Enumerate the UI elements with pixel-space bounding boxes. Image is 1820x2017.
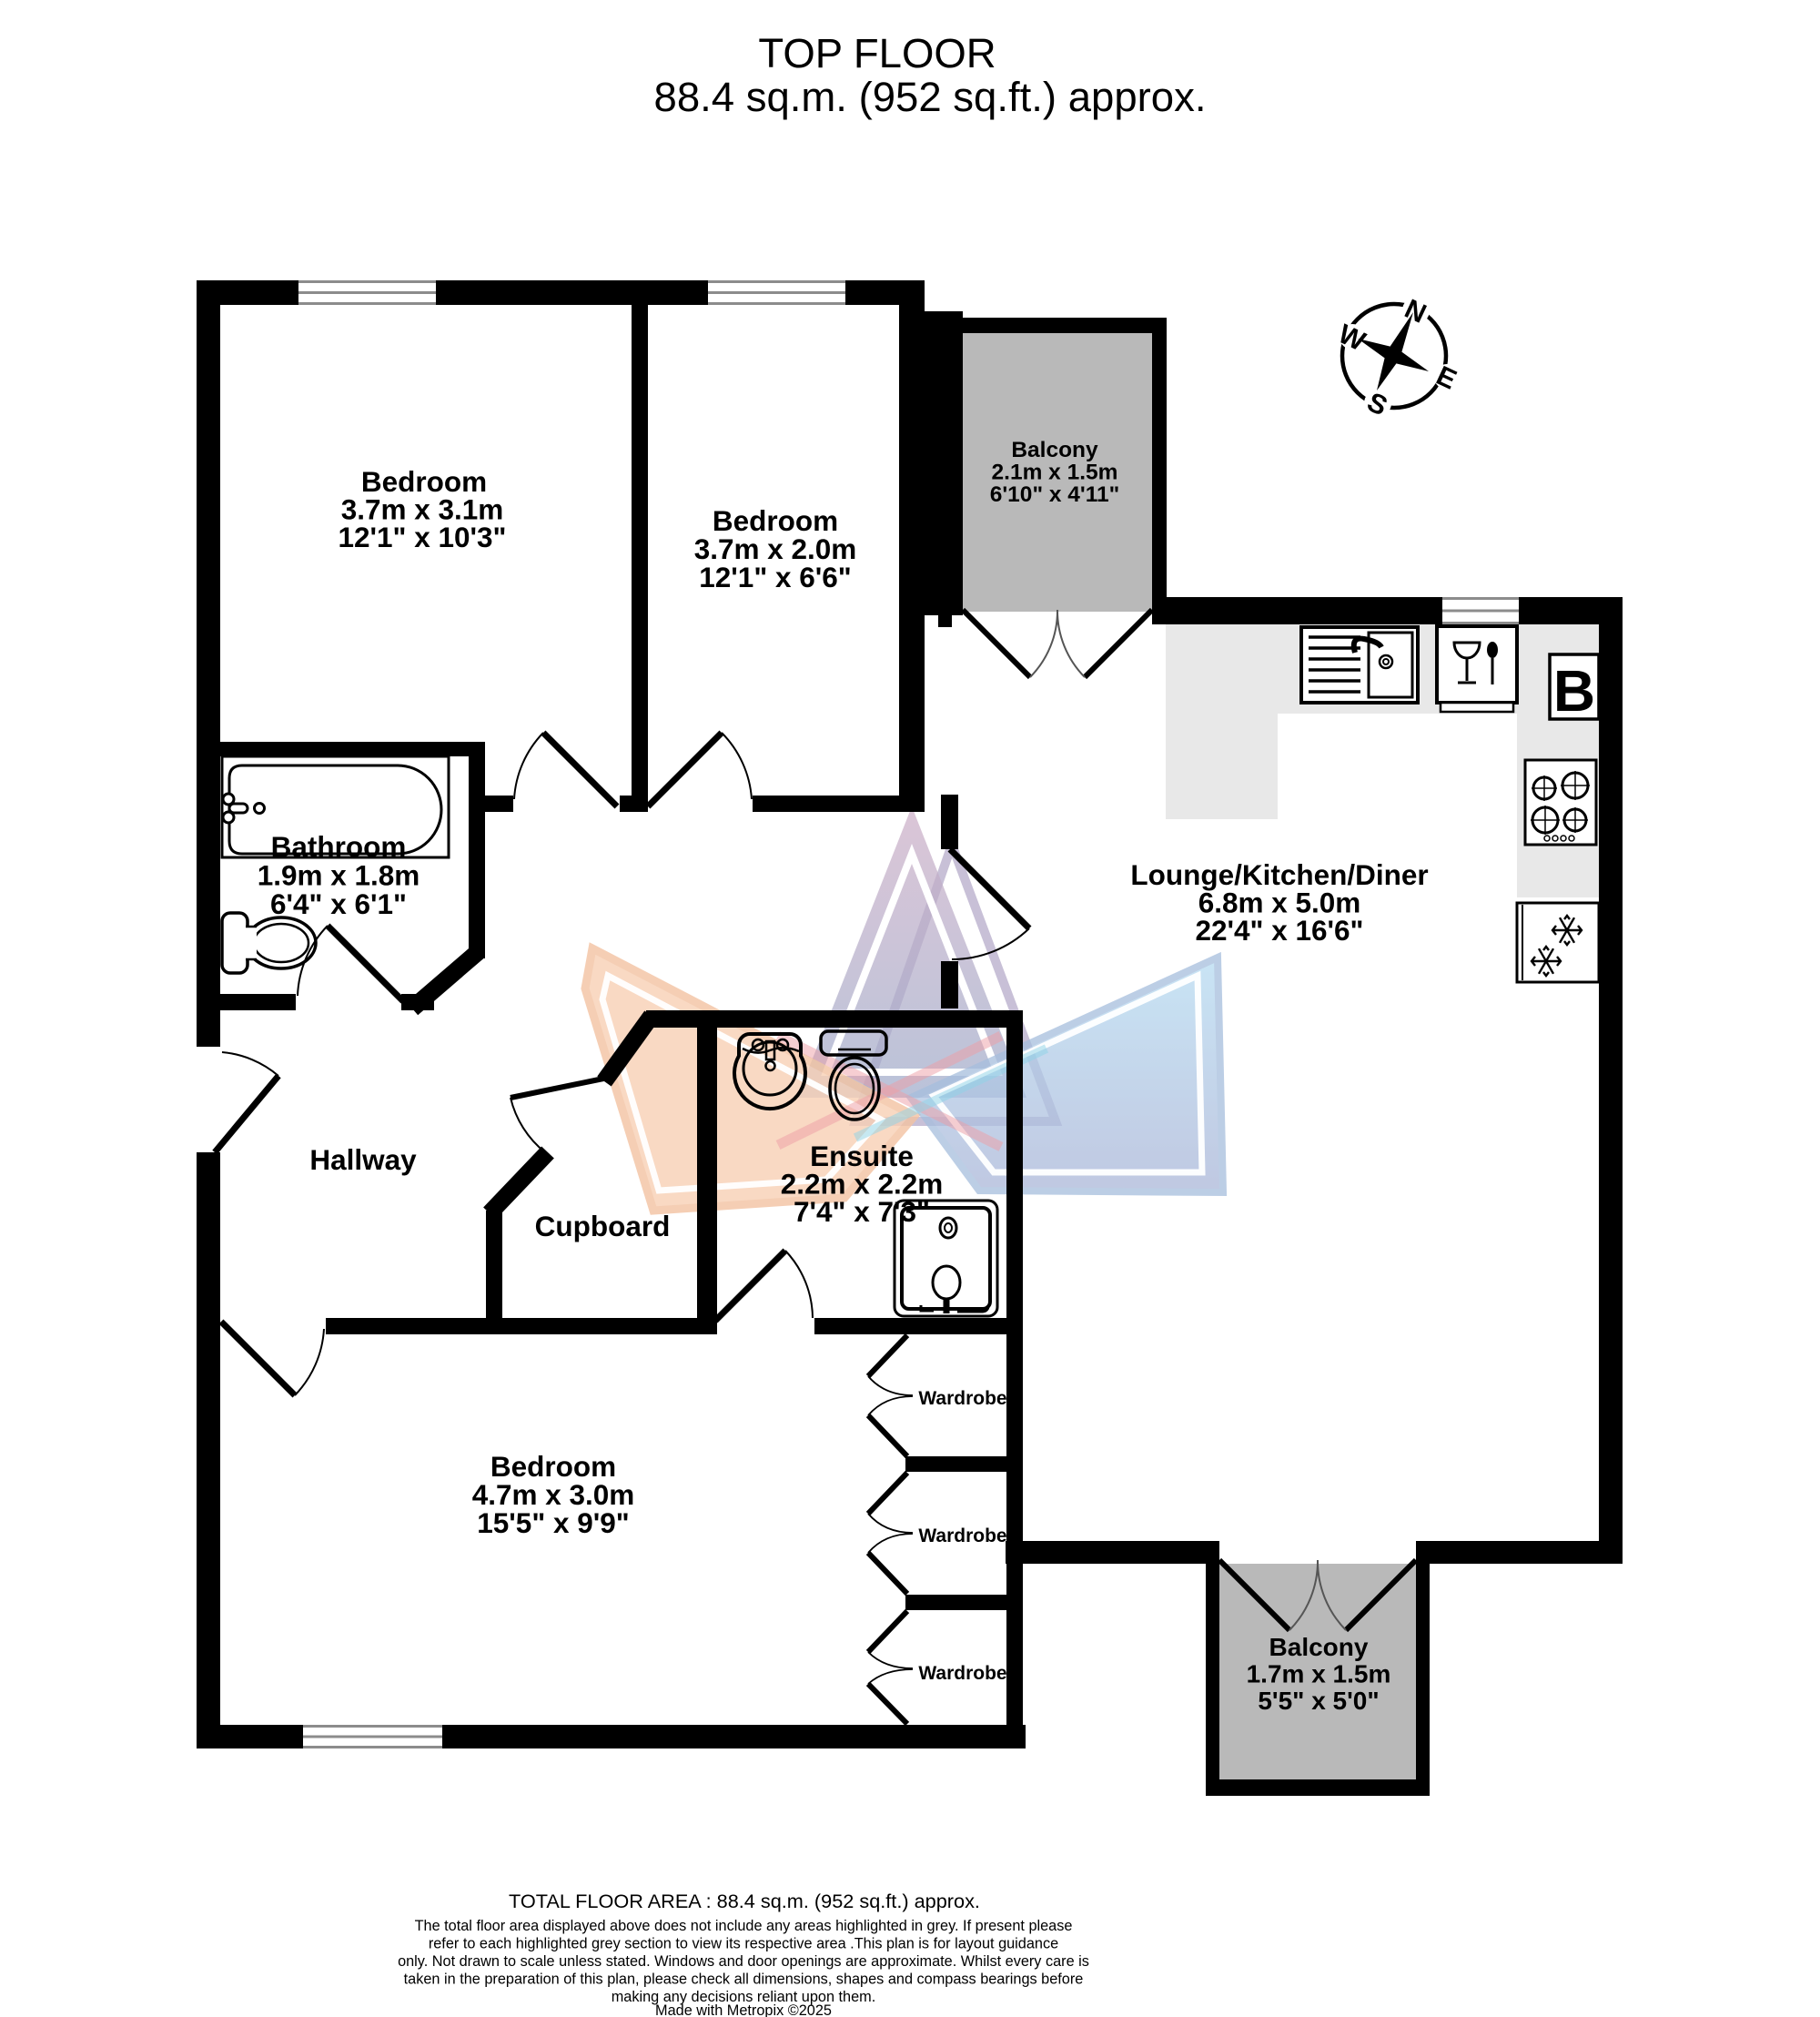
svg-text:The total floor area displayed: The total floor area displayed above doe…	[415, 1918, 1073, 1934]
svg-text:7'4" x 7'3": 7'4" x 7'3"	[794, 1195, 930, 1228]
svg-text:refer to each highlighted grey: refer to each highlighted grey section t…	[429, 1936, 1058, 1952]
svg-text:1.7m x 1.5m: 1.7m x 1.5m	[1247, 1660, 1391, 1688]
svg-text:Wardrobe: Wardrobe	[918, 1663, 1006, 1684]
svg-text:15'5" x 9'9": 15'5" x 9'9"	[477, 1506, 629, 1539]
svg-text:Wardrobe: Wardrobe	[918, 1388, 1006, 1409]
svg-text:Cupboard: Cupboard	[535, 1210, 671, 1242]
svg-text:6'4" x 6'1": 6'4" x 6'1"	[270, 887, 407, 920]
svg-text:Made with Metropix ©2025: Made with Metropix ©2025	[655, 2002, 832, 2017]
svg-text:Wardrobe: Wardrobe	[918, 1525, 1006, 1546]
svg-text:taken in the preparation of th: taken in the preparation of this plan, p…	[404, 1971, 1084, 1988]
svg-text:Balcony: Balcony	[1269, 1633, 1369, 1661]
svg-text:22'4" x 16'6": 22'4" x 16'6"	[1196, 914, 1364, 947]
svg-text:2.1m x 1.5m: 2.1m x 1.5m	[992, 461, 1118, 485]
svg-text:12'1" x 10'3": 12'1" x 10'3"	[339, 521, 507, 553]
svg-text:Balcony: Balcony	[1011, 438, 1098, 462]
svg-text:6'10" x 4'11": 6'10" x 4'11"	[990, 482, 1120, 507]
svg-text:TOTAL FLOOR AREA : 88.4 sq.m.: TOTAL FLOOR AREA : 88.4 sq.m. (952 sq.ft…	[509, 1890, 980, 1912]
svg-text:12'1" x 6'6": 12'1" x 6'6"	[699, 561, 851, 593]
svg-text:B: B	[1553, 658, 1595, 724]
svg-text:5'5" x 5'0": 5'5" x 5'0"	[1258, 1687, 1379, 1715]
svg-text:Hallway: Hallway	[309, 1143, 417, 1176]
svg-text:only. Not drawn to scale unles: only. Not drawn to scale unless stated. …	[398, 1953, 1089, 1970]
svg-text:TOP FLOOR: TOP FLOOR	[758, 30, 996, 76]
svg-text:88.4 sq.m. (952 sq.ft.) approx: 88.4 sq.m. (952 sq.ft.) approx.	[654, 74, 1207, 120]
